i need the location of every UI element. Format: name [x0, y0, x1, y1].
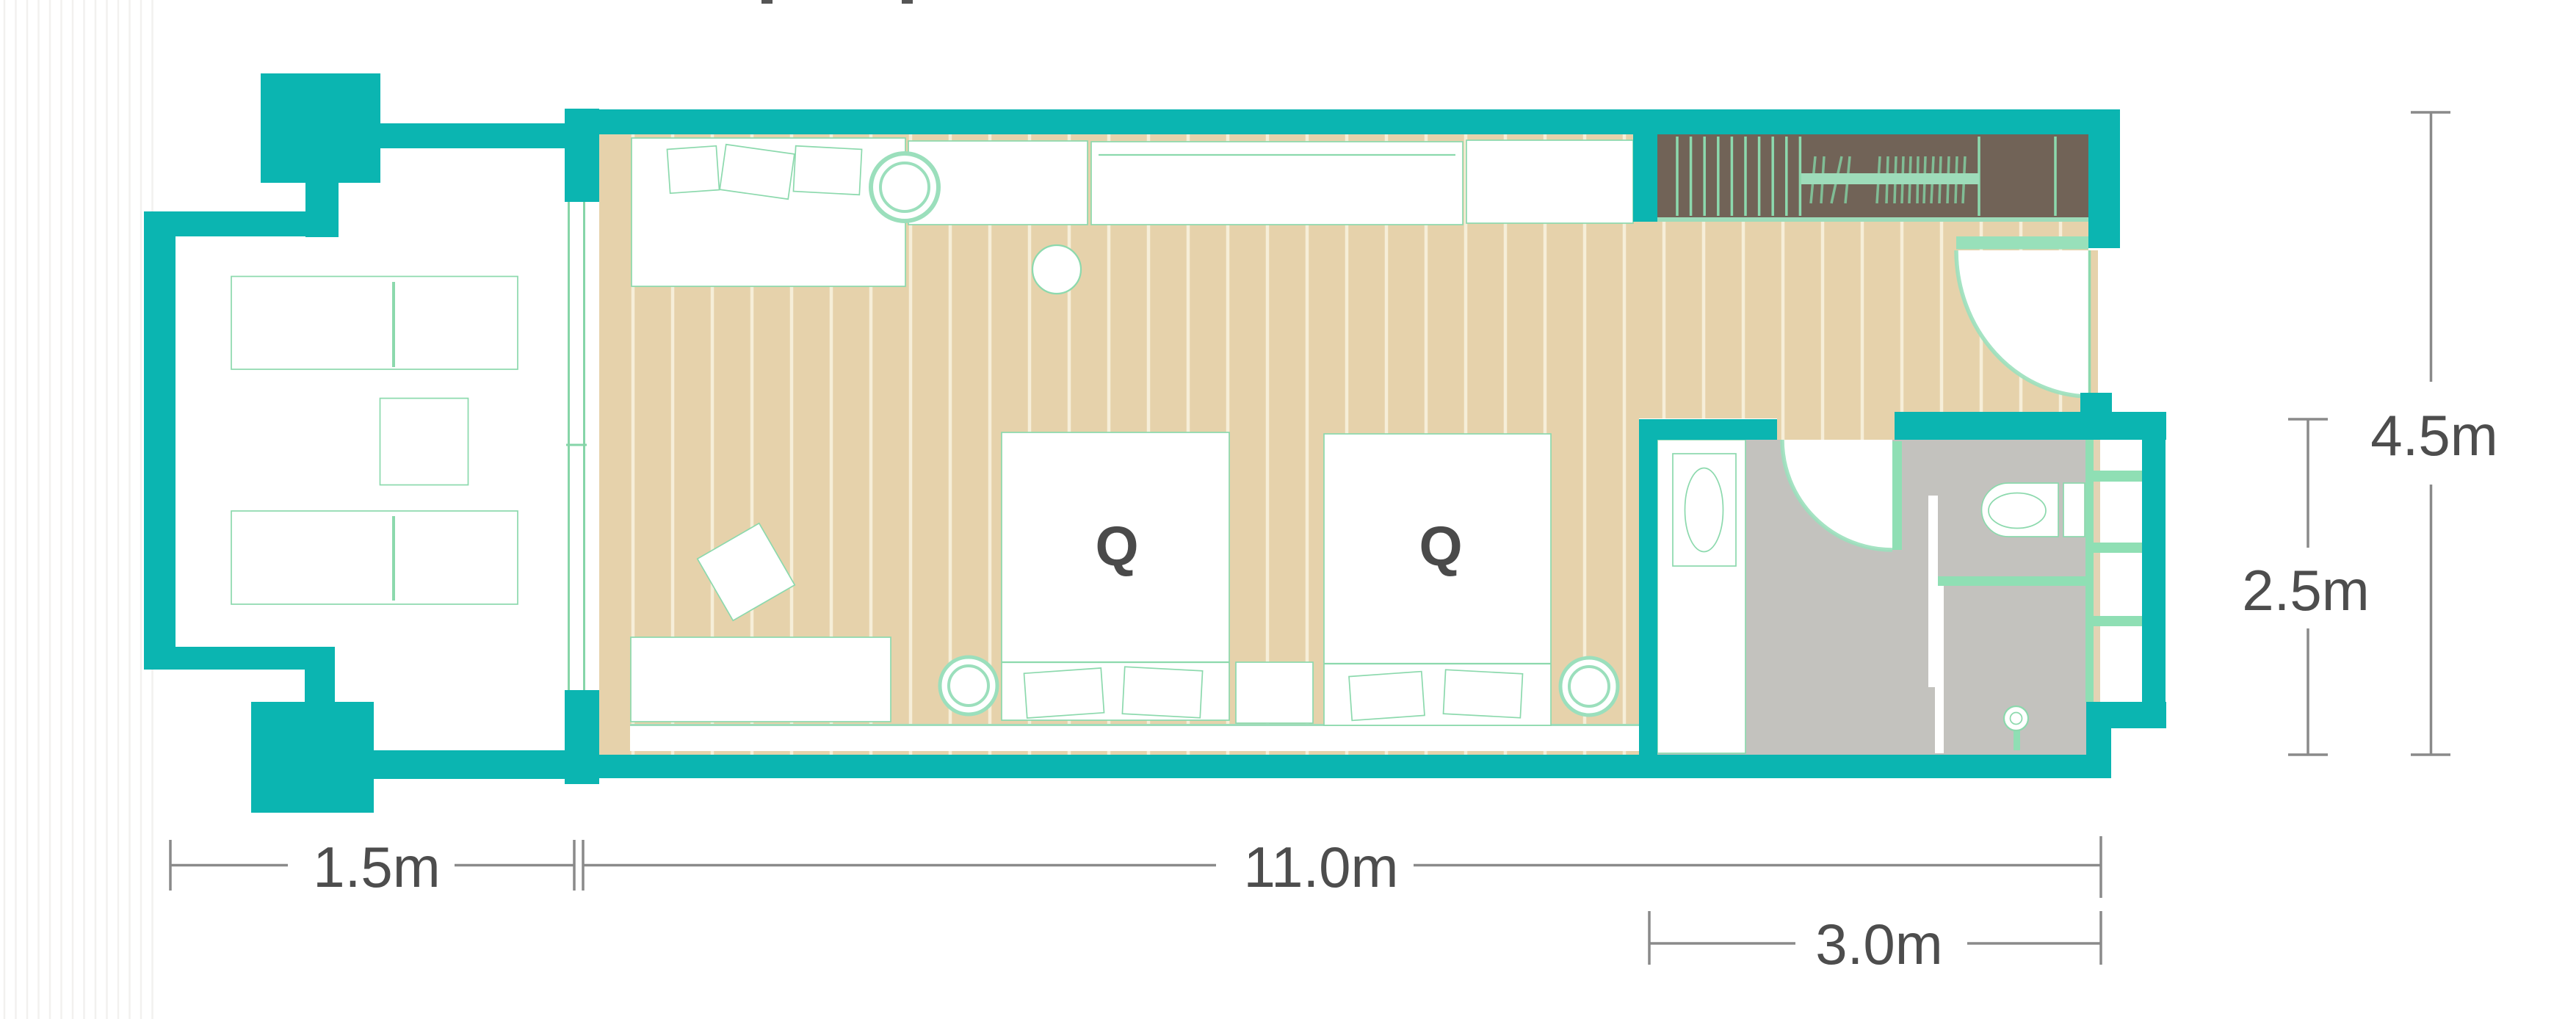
svg-text:Q: Q: [1095, 515, 1138, 578]
svg-text:2.5m: 2.5m: [2242, 558, 2369, 623]
svg-text:3.0m: 3.0m: [1815, 912, 1942, 976]
svg-text:1.5m: 1.5m: [313, 835, 440, 899]
svg-text:4.5m: 4.5m: [2370, 403, 2497, 468]
svg-text:Q: Q: [1419, 515, 1462, 578]
svg-text:11.0m: 11.0m: [1244, 835, 1399, 899]
